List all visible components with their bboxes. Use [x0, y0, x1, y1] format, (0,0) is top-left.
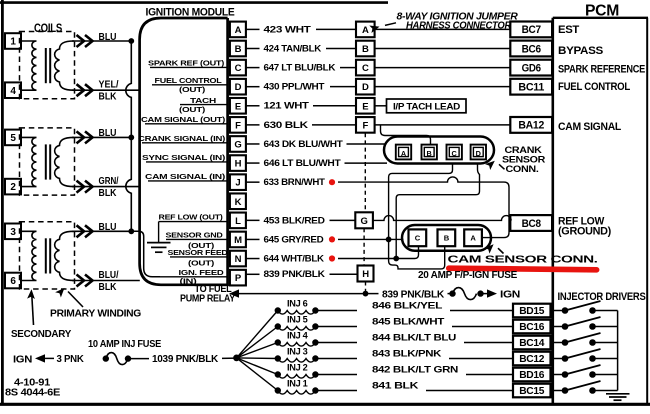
svg-text:5: 5 [10, 133, 16, 144]
svg-text:CAM SIGNAL (OUT): CAM SIGNAL (OUT) [141, 116, 226, 124]
svg-text:121 WHT: 121 WHT [264, 101, 310, 111]
svg-text:PCM: PCM [585, 2, 619, 19]
svg-text:K: K [235, 197, 242, 208]
svg-text:BC12: BC12 [519, 354, 545, 365]
svg-text:PUMP RELAY: PUMP RELAY [180, 294, 236, 305]
svg-text:20 AMP F/P-IGN FUSE: 20 AMP F/P-IGN FUSE [418, 270, 517, 281]
svg-text:644 WHT/BLK: 644 WHT/BLK [264, 253, 325, 263]
svg-text:C: C [415, 234, 421, 243]
svg-text:430 PPL/WHT: 430 PPL/WHT [264, 82, 325, 92]
svg-text:(OUT): (OUT) [188, 259, 215, 267]
svg-text:G: G [234, 139, 241, 150]
svg-text:SENSOR GND: SENSOR GND [166, 232, 223, 240]
svg-text:COILS: COILS [34, 23, 63, 35]
svg-text:SECONDARY: SECONDARY [11, 329, 71, 340]
svg-text:633 BRN/WHT: 633 BRN/WHT [264, 177, 326, 187]
svg-text:FUEL CONTROL: FUEL CONTROL [558, 81, 631, 93]
svg-text:H: H [362, 269, 369, 280]
svg-text:647 LT BLU/BLK: 647 LT BLU/BLK [264, 62, 336, 72]
svg-text:I/P TACH LEAD: I/P TACH LEAD [393, 101, 460, 112]
svg-text:A: A [401, 149, 407, 158]
svg-text:(GROUND): (GROUND) [558, 226, 612, 238]
svg-text:645 GRY/RED: 645 GRY/RED [264, 234, 325, 244]
svg-text:E: E [362, 101, 368, 112]
svg-text:646 LT BLU/WHT: 646 LT BLU/WHT [264, 158, 342, 168]
svg-text:BC7: BC7 [522, 24, 542, 36]
svg-text:D: D [235, 82, 242, 93]
svg-text:BLK: BLK [99, 187, 117, 199]
svg-text:CAM SENSOR CONN.: CAM SENSOR CONN. [448, 255, 599, 266]
svg-text:J: J [235, 178, 240, 189]
svg-text:CONN.: CONN. [506, 164, 539, 175]
svg-text:839 PNK/BLK: 839 PNK/BLK [382, 289, 445, 300]
svg-text:IGN: IGN [500, 290, 520, 301]
svg-text:423 WHT: 423 WHT [264, 24, 312, 34]
svg-text:BLU: BLU [99, 31, 117, 43]
svg-text:G: G [361, 216, 368, 227]
svg-text:INJ 5: INJ 5 [287, 314, 308, 324]
svg-text:843 BLK/PNK: 843 BLK/PNK [372, 349, 442, 359]
svg-text:YEL/: YEL/ [99, 79, 119, 91]
svg-text:F: F [235, 120, 241, 131]
svg-text:CAM SIGNAL: CAM SIGNAL [558, 121, 622, 133]
svg-text:B: B [362, 44, 369, 55]
svg-text:BD16: BD16 [519, 370, 545, 381]
svg-text:C: C [452, 149, 458, 158]
svg-text:BLU: BLU [99, 221, 117, 233]
svg-text:INJ 6: INJ 6 [287, 298, 308, 308]
svg-text:2: 2 [10, 182, 16, 193]
svg-text:FUEL CONTROL: FUEL CONTROL [155, 77, 223, 85]
svg-text:839 PNK/BLK: 839 PNK/BLK [264, 269, 326, 279]
svg-text:SPARK REFERENCE: SPARK REFERENCE [558, 63, 645, 75]
svg-text:CAM SIGNAL (IN): CAM SIGNAL (IN) [145, 173, 226, 181]
svg-text:E: E [235, 101, 241, 112]
svg-text:10 AMP INJ FUSE: 10 AMP INJ FUSE [88, 339, 161, 350]
svg-text:L: L [235, 216, 241, 227]
svg-text:SPARK REF (OUT): SPARK REF (OUT) [148, 59, 225, 67]
svg-text:1039 PNK/BLK: 1039 PNK/BLK [152, 354, 219, 365]
svg-text:A: A [235, 25, 242, 36]
svg-text:INJECTOR DRIVERS: INJECTOR DRIVERS [558, 291, 646, 303]
svg-text:INJ 3: INJ 3 [287, 346, 308, 356]
svg-text:EST: EST [558, 24, 580, 36]
svg-text:BC16: BC16 [519, 322, 545, 333]
svg-text:INJ 4: INJ 4 [287, 330, 309, 340]
svg-text:BC8: BC8 [522, 218, 542, 230]
svg-text:SYNC SIGNAL (IN): SYNC SIGNAL (IN) [142, 154, 226, 162]
svg-text:(OUT): (OUT) [179, 106, 206, 114]
svg-text:C: C [235, 63, 242, 74]
svg-text:845 BLK/WHT: 845 BLK/WHT [372, 317, 445, 327]
svg-text:TACH: TACH [190, 97, 216, 105]
svg-text:H: H [235, 159, 242, 170]
svg-text:B: B [444, 234, 450, 243]
svg-text:GRN/: GRN/ [99, 175, 119, 187]
svg-text:BLU: BLU [99, 127, 117, 139]
svg-text:BA12: BA12 [518, 120, 544, 132]
svg-text:BLK: BLK [99, 281, 117, 293]
svg-text:3 PNK: 3 PNK [57, 354, 85, 365]
svg-text:INJ 2: INJ 2 [287, 362, 308, 372]
svg-text:6: 6 [10, 276, 16, 287]
svg-text:PRIMARY WINDING: PRIMARY WINDING [50, 309, 141, 320]
svg-text:842 BLK/LT GRN: 842 BLK/LT GRN [372, 365, 459, 375]
svg-text:IGN. FEED: IGN. FEED [179, 269, 224, 277]
svg-text:CRANK SIGNAL (IN): CRANK SIGNAL (IN) [138, 135, 226, 143]
svg-text:B: B [427, 149, 432, 158]
svg-text:M: M [234, 235, 242, 246]
svg-text:3: 3 [10, 227, 16, 238]
svg-text:P: P [235, 273, 242, 284]
svg-text:844 BLK/LT BLU: 844 BLK/LT BLU [372, 333, 457, 343]
svg-text:A: A [470, 234, 476, 243]
svg-text:REF LOW (OUT): REF LOW (OUT) [159, 214, 224, 222]
svg-text:BC6: BC6 [522, 43, 542, 55]
svg-text:F: F [363, 120, 369, 131]
svg-text:A: A [362, 25, 369, 36]
svg-text:846 BLK/YEL: 846 BLK/YEL [372, 301, 443, 311]
svg-text:D: D [362, 82, 369, 93]
svg-text:C: C [362, 63, 369, 74]
svg-text:BYPASS: BYPASS [558, 45, 603, 57]
svg-text:841 BLK: 841 BLK [372, 381, 419, 391]
svg-text:4: 4 [10, 86, 16, 97]
svg-text:453 BLK/RED: 453 BLK/RED [264, 215, 326, 225]
svg-text:1: 1 [10, 37, 16, 48]
svg-text:(OUT): (OUT) [179, 86, 206, 94]
svg-text:BLK: BLK [99, 91, 117, 103]
svg-text:BC15: BC15 [519, 386, 545, 397]
svg-text:D: D [476, 149, 481, 158]
svg-text:BLU/: BLU/ [99, 269, 119, 281]
svg-text:8S 4044-6E: 8S 4044-6E [5, 388, 60, 399]
svg-text:BD15: BD15 [519, 306, 545, 317]
svg-text:B: B [235, 44, 242, 55]
svg-text:630 BLK: 630 BLK [264, 120, 309, 130]
svg-text:643 DK BLU/WHT: 643 DK BLU/WHT [264, 139, 344, 149]
svg-text:BC14: BC14 [519, 338, 545, 349]
svg-text:N: N [235, 254, 242, 265]
svg-text:IGN: IGN [13, 354, 32, 365]
svg-text:SENSOR FEED: SENSOR FEED [168, 249, 228, 257]
svg-text:INJ 1: INJ 1 [287, 378, 308, 388]
svg-text:GD6: GD6 [522, 62, 542, 74]
svg-text:424 TAN/BLK: 424 TAN/BLK [264, 43, 322, 53]
svg-text:BC11: BC11 [518, 82, 544, 94]
